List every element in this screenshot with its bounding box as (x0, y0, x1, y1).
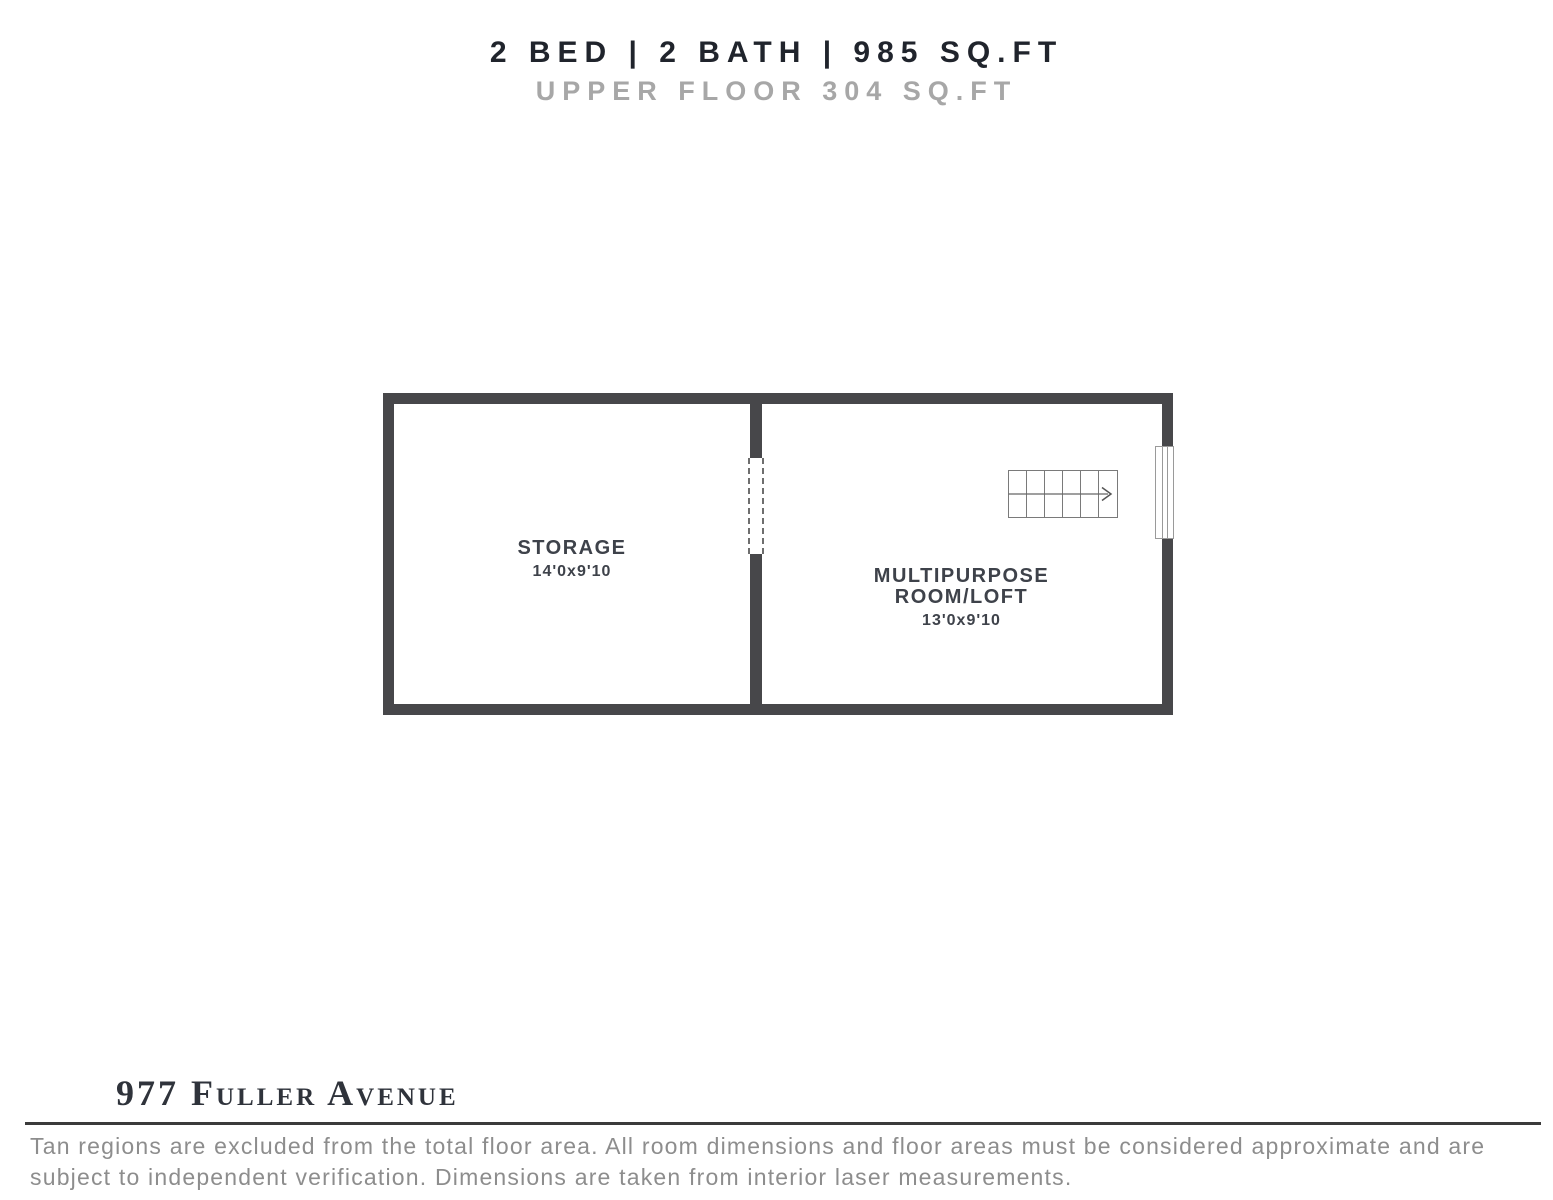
room-dimensions: 13'0x9'10 (762, 612, 1161, 630)
room-label-multipurpose: MULTIPURPOSE ROOM/LOFT 13'0x9'10 (762, 566, 1161, 630)
plan-title: 2 BED | 2 BATH | 985 SQ.FT (0, 36, 1553, 70)
property-address: 977 Fuller Avenue (116, 1072, 459, 1114)
room-name: STORAGE (394, 538, 750, 559)
room-dimensions: 14'0x9'10 (394, 563, 750, 581)
floorplan-page: 2 BED | 2 BATH | 985 SQ.FT UPPER FLOOR 3… (0, 0, 1553, 1200)
room-name: ROOM/LOFT (762, 587, 1161, 608)
disclaimer-text: Tan regions are excluded from the total … (30, 1131, 1544, 1193)
window-icon (1155, 446, 1174, 539)
window-pane (1162, 447, 1168, 538)
footer-divider-line (25, 1122, 1541, 1125)
room-name: MULTIPURPOSE (762, 566, 1161, 587)
door-opening-icon (748, 458, 764, 554)
interior-wall (750, 393, 762, 715)
stairs-icon (1008, 470, 1118, 518)
plan-subtitle: UPPER FLOOR 304 SQ.FT (0, 76, 1553, 107)
room-label-storage: STORAGE 14'0x9'10 (394, 538, 750, 581)
